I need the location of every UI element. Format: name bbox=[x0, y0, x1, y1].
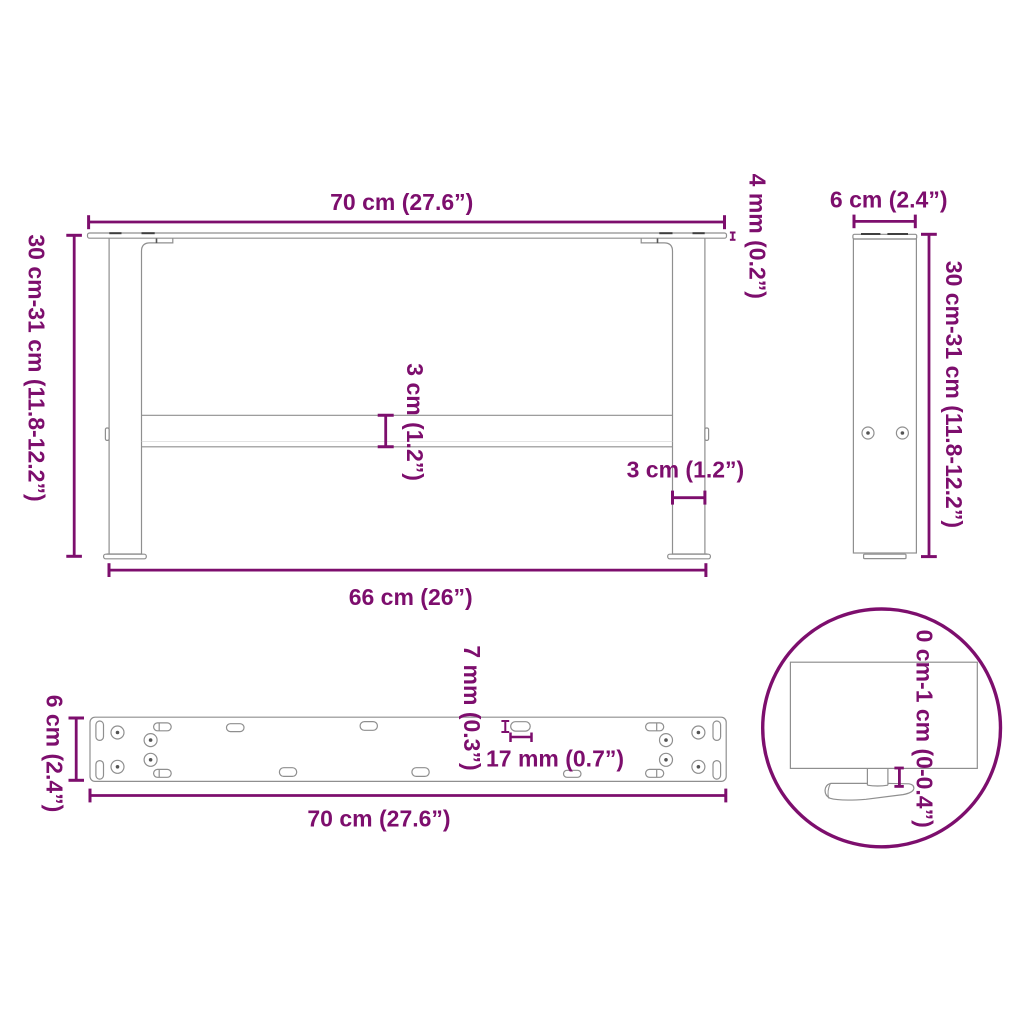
svg-text:30 cm-31 cm (11.8-12.2”): 30 cm-31 cm (11.8-12.2”) bbox=[941, 261, 967, 528]
svg-text:7 mm (0.3”): 7 mm (0.3”) bbox=[459, 645, 485, 770]
svg-text:0 cm-1 cm (0-0.4”): 0 cm-1 cm (0-0.4”) bbox=[912, 630, 938, 828]
svg-text:70 cm (27.6”): 70 cm (27.6”) bbox=[307, 806, 450, 832]
svg-text:4 mm (0.2”): 4 mm (0.2”) bbox=[745, 174, 771, 299]
svg-text:3 cm (1.2”): 3 cm (1.2”) bbox=[627, 457, 745, 483]
svg-text:6 cm (2.4”): 6 cm (2.4”) bbox=[830, 187, 948, 213]
svg-text:66 cm (26”): 66 cm (26”) bbox=[349, 584, 473, 610]
svg-text:3 cm (1.2”): 3 cm (1.2”) bbox=[402, 363, 428, 481]
svg-text:17 mm (0.7”): 17 mm (0.7”) bbox=[486, 746, 624, 772]
svg-text:30 cm-31 cm (11.8-12.2”): 30 cm-31 cm (11.8-12.2”) bbox=[24, 234, 50, 501]
svg-text:6 cm (2.4”): 6 cm (2.4”) bbox=[42, 695, 68, 813]
svg-text:70 cm (27.6”): 70 cm (27.6”) bbox=[330, 189, 473, 215]
